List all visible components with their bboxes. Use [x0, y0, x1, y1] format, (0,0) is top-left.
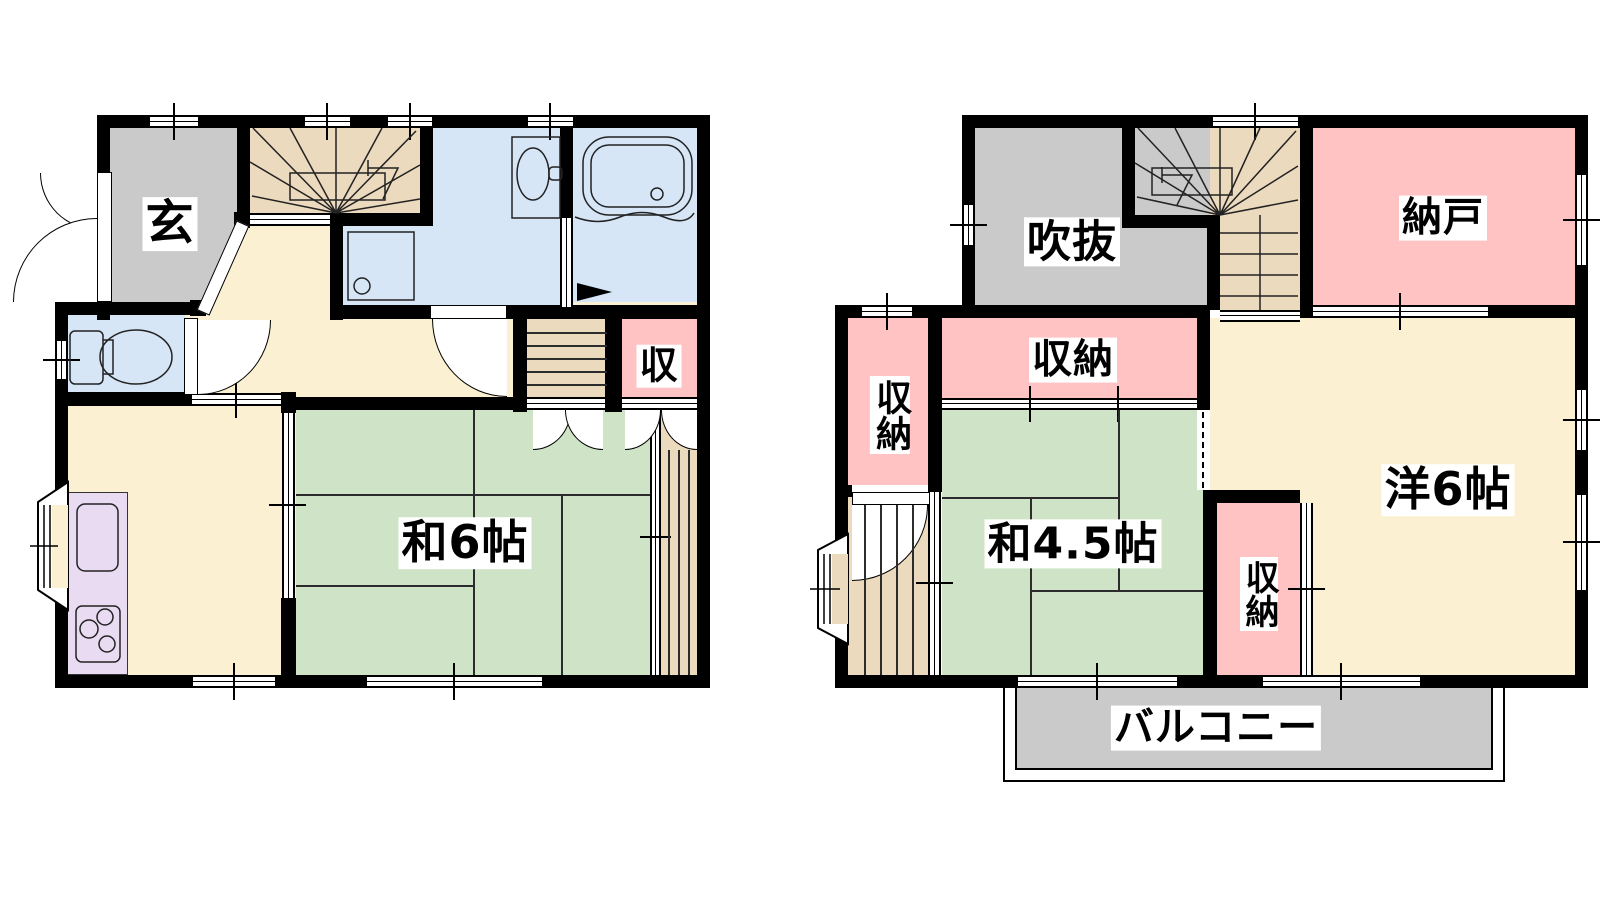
window-tick — [950, 224, 987, 226]
window-tick — [1254, 103, 1256, 140]
closet-sliding-door — [942, 398, 1197, 410]
stair-opening — [1220, 310, 1300, 322]
room-label-storage-1f: 収 — [636, 345, 681, 388]
room-label-closet-small: 収納 — [1240, 557, 1278, 631]
window-tick — [1563, 219, 1600, 221]
window-tick — [1029, 386, 1031, 422]
corridor-stripe — [864, 505, 866, 675]
corridor-stripe — [896, 505, 898, 675]
room-label-tatami6: 和6帖 — [398, 517, 531, 569]
tatami-line — [1030, 590, 1203, 592]
window-tick — [1399, 293, 1401, 330]
room-label-fukinuke: 吹抜 — [1024, 217, 1120, 266]
wall-segment — [1122, 215, 1220, 228]
wall-segment — [1488, 305, 1575, 318]
window-tick — [886, 293, 888, 330]
room-label-balcony: バルコニー — [1111, 706, 1321, 751]
wall-segment — [1300, 115, 1313, 318]
wall-segment — [928, 318, 942, 492]
wall-segment — [1197, 318, 1210, 410]
corridor-stripe — [912, 505, 914, 675]
room-boundary-dashed — [1202, 412, 1204, 488]
window-tick — [1340, 663, 1342, 700]
floor-2-plan — [0, 0, 1600, 900]
window-tick — [1288, 588, 1325, 590]
wall-segment — [1207, 228, 1220, 310]
wall-segment — [1203, 503, 1217, 675]
wall-segment — [1203, 490, 1300, 503]
wall-segment — [835, 675, 1588, 688]
window-tick — [1563, 541, 1600, 543]
room-label-closet-top: 収納 — [1029, 338, 1117, 383]
window-tick — [916, 582, 953, 584]
room-label-nando: 納戸 — [1399, 196, 1487, 241]
window-tick — [1563, 419, 1600, 421]
room-label-tatami45: 和4.5帖 — [985, 519, 1162, 568]
wall-segment — [835, 485, 852, 497]
wall-segment — [1122, 128, 1135, 215]
room-label-genkan: 玄 — [142, 197, 197, 251]
corridor-door-slab — [852, 492, 930, 505]
room-label-closet-left: 収納 — [870, 376, 910, 454]
floor-plan-canvas: 玄 収 和6帖 吹抜 納戸 収納 収納 和4.5帖 収納 洋6帖 バルコニー — [0, 0, 1600, 900]
room-label-western6: 洋6帖 — [1381, 464, 1514, 516]
window-tick — [1096, 663, 1098, 700]
corridor-stripe — [880, 505, 882, 675]
